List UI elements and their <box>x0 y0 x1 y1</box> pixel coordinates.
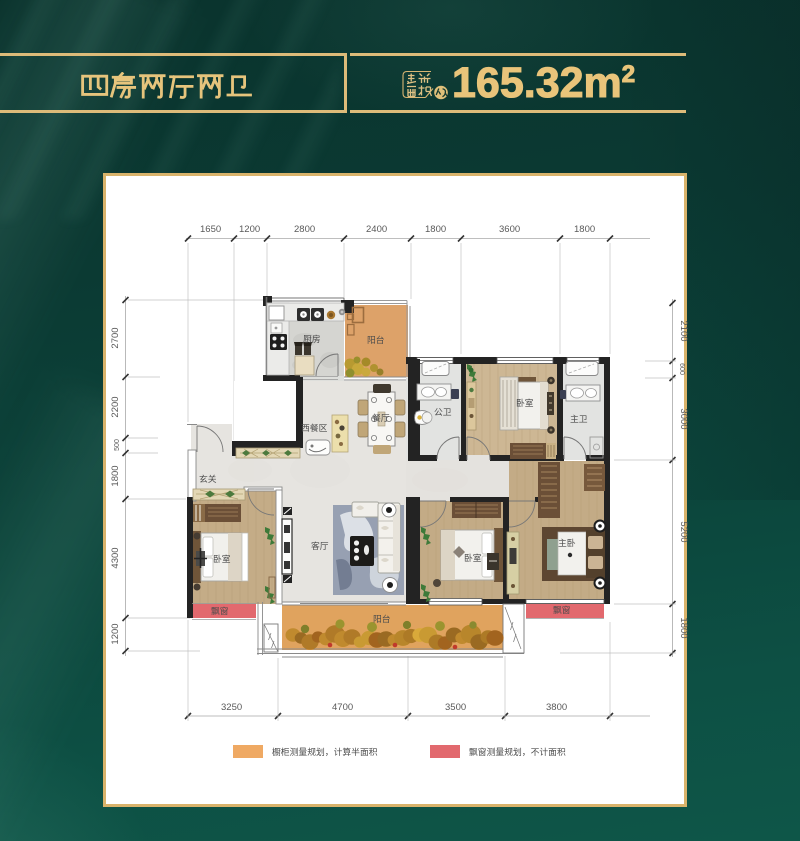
svg-text:600: 600 <box>678 363 685 375</box>
svg-text:飘窗测量规划，不计面积: 飘窗测量规划，不计面积 <box>469 746 566 757</box>
svg-text:3250: 3250 <box>221 702 242 713</box>
svg-text:阳台: 阳台 <box>373 613 391 624</box>
svg-text:1650: 1650 <box>200 224 221 235</box>
svg-text:1200: 1200 <box>239 224 260 235</box>
svg-text:厨房: 厨房 <box>303 333 321 344</box>
svg-text:500: 500 <box>114 439 121 451</box>
svg-text:5200: 5200 <box>678 521 689 542</box>
svg-text:阳台: 阳台 <box>367 334 385 345</box>
svg-text:1800: 1800 <box>574 224 595 235</box>
svg-text:1200: 1200 <box>110 623 121 644</box>
svg-text:3500: 3500 <box>445 702 466 713</box>
svg-text:2100: 2100 <box>678 320 689 341</box>
svg-text:2400: 2400 <box>366 224 387 235</box>
svg-text:橱柜测量规划，计算半面积: 橱柜测量规划，计算半面积 <box>272 746 378 757</box>
svg-text:1800: 1800 <box>678 617 689 638</box>
svg-text:1800: 1800 <box>110 465 121 486</box>
svg-text:4300: 4300 <box>110 547 121 568</box>
svg-text:2200: 2200 <box>110 396 121 417</box>
svg-text:飘窗: 飘窗 <box>211 605 229 616</box>
svg-text:2700: 2700 <box>110 327 121 348</box>
svg-text:4700: 4700 <box>332 702 353 713</box>
svg-text:飘窗: 飘窗 <box>553 604 571 615</box>
svg-text:餐厅: 餐厅 <box>372 412 390 423</box>
svg-text:客厅: 客厅 <box>311 540 329 551</box>
svg-text:1800: 1800 <box>425 224 446 235</box>
svg-text:卧室: 卧室 <box>213 553 231 564</box>
svg-text:2800: 2800 <box>294 224 315 235</box>
svg-text:卧室: 卧室 <box>516 397 534 408</box>
svg-text:3000: 3000 <box>678 408 689 429</box>
svg-text:主卧: 主卧 <box>558 537 576 548</box>
svg-text:公卫: 公卫 <box>434 407 452 417</box>
svg-text:主卫: 主卫 <box>570 413 588 424</box>
svg-text:3600: 3600 <box>499 224 520 235</box>
svg-text:卧室: 卧室 <box>464 552 482 563</box>
svg-text:3800: 3800 <box>546 702 567 713</box>
svg-text:玄关: 玄关 <box>199 473 217 484</box>
svg-text:西餐区: 西餐区 <box>301 422 328 433</box>
